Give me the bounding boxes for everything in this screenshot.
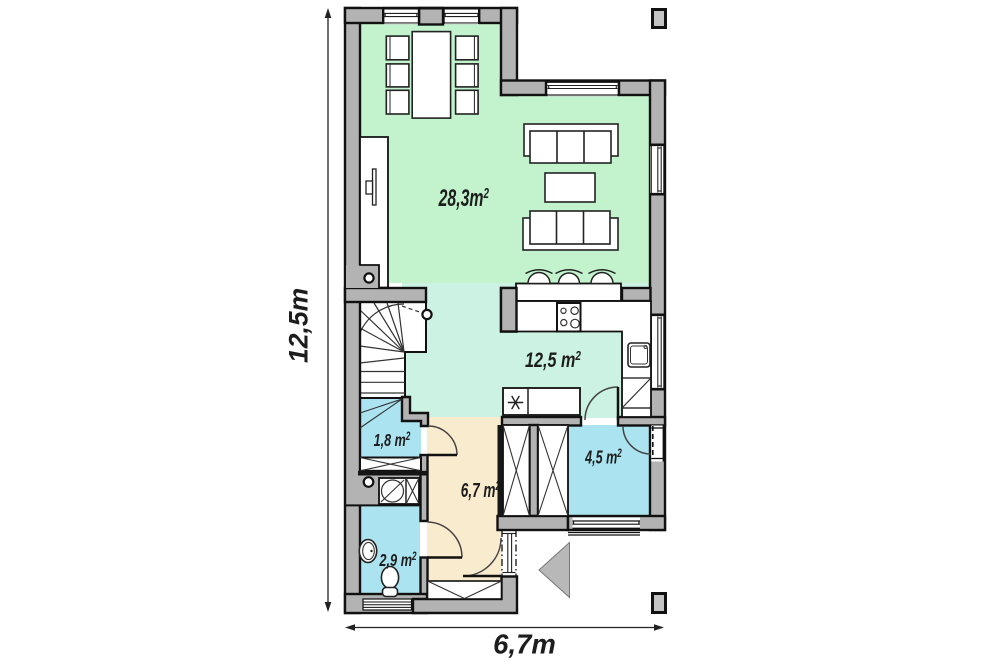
svg-text:28,3m2: 28,3m2: [438, 185, 489, 212]
svg-text:4,5 m2: 4,5 m2: [584, 448, 622, 469]
svg-text:12,5m: 12,5m: [284, 288, 314, 363]
svg-text:12,5 m2: 12,5 m2: [525, 348, 581, 372]
svg-text:2,9 m2: 2,9 m2: [379, 551, 417, 571]
svg-text:6,7 m2: 6,7 m2: [461, 479, 501, 501]
svg-text:1,8 m2: 1,8 m2: [374, 431, 411, 451]
svg-text:6,7m: 6,7m: [493, 629, 556, 660]
